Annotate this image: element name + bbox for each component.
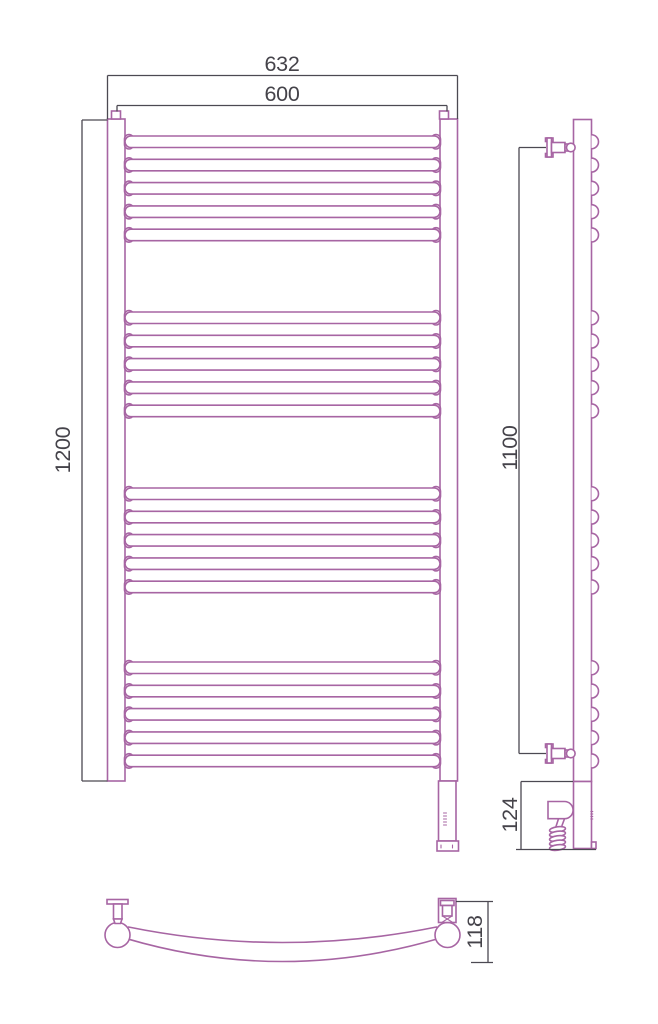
front-right-post: [440, 119, 458, 781]
front-rung: [125, 535, 440, 547]
side-post: [574, 120, 592, 782]
front-rung: [125, 335, 440, 347]
cable-neck: [556, 819, 565, 827]
bottom-right-collector: [435, 923, 460, 948]
bracket-ball: [567, 143, 576, 152]
side-rung-ends: [592, 135, 599, 768]
dim-overall-height: 1200: [51, 120, 108, 781]
bracket-arm: [552, 749, 566, 759]
front-rung: [125, 488, 440, 500]
front-rungs: [125, 135, 441, 769]
side-rung-bump: [592, 158, 599, 172]
dim-overall-height-label: 1200: [51, 426, 75, 473]
front-rung: [125, 312, 440, 324]
side-rung-bump: [592, 357, 599, 371]
side-wall-brackets: [546, 138, 576, 763]
side-rung-bump: [592, 707, 599, 721]
front-rung: [125, 206, 440, 218]
drawing-sheet: 632 600 1200 1100 124 118: [0, 0, 658, 1024]
bracket-arm: [552, 143, 566, 153]
front-rung: [125, 558, 440, 570]
side-rung-bump: [592, 510, 599, 524]
bottom-right-bracket: [439, 899, 457, 923]
front-rung: [125, 685, 440, 697]
front-rung: [125, 662, 440, 674]
front-left-top-stub: [112, 111, 121, 119]
side-rung-bump: [592, 334, 599, 348]
front-rung: [125, 755, 440, 767]
side-rung-bump: [592, 487, 599, 501]
front-rung: [125, 709, 440, 721]
front-rung: [125, 229, 440, 241]
front-left-post: [108, 119, 126, 781]
curved-rung-bottom-edge: [125, 938, 441, 962]
front-rung: [125, 405, 440, 417]
dim-rail-width: 600: [117, 82, 447, 112]
side-bottom-foot: [592, 842, 597, 849]
side-rung-bump: [592, 533, 599, 547]
front-rung: [125, 382, 440, 394]
bottom-left-bracket: [107, 900, 128, 924]
front-rung: [125, 359, 440, 371]
bracket-ball: [567, 749, 576, 758]
bottom-view: [105, 899, 460, 962]
front-rung: [125, 511, 440, 523]
side-rung-bump: [592, 135, 599, 149]
side-rung-bump: [592, 684, 599, 698]
side-heater-section: [574, 782, 592, 849]
dim-depth: 118: [456, 902, 493, 963]
front-rung: [125, 159, 440, 171]
front-rung: [125, 581, 440, 593]
side-rung-bump: [592, 661, 599, 675]
side-rung-bump: [592, 754, 599, 768]
bottom-left-collector: [105, 923, 130, 948]
side-rung-bump: [592, 381, 599, 395]
heater-head: [548, 802, 573, 819]
side-rung-bump: [592, 205, 599, 219]
front-heater-housing: [437, 781, 459, 851]
front-rung: [125, 732, 440, 744]
side-rung-bump: [592, 557, 599, 571]
dim-mounting-height-label: 1100: [498, 425, 522, 470]
front-rung: [125, 183, 440, 195]
front-view: [108, 111, 459, 851]
technical-drawing: 632 600 1200 1100 124 118: [0, 0, 658, 1024]
dim-lower-section-label: 124: [498, 797, 522, 832]
dim-depth-label: 118: [463, 915, 487, 949]
front-right-top-stub: [440, 111, 449, 119]
dim-overall-width-label: 632: [265, 52, 300, 76]
front-rung: [125, 136, 440, 148]
dim-rail-width-label: 600: [265, 82, 300, 106]
cable-coil: [549, 826, 566, 852]
dim-mounting-height: 1100: [498, 148, 546, 754]
side-rung-bump: [592, 311, 599, 325]
side-rung-bump: [592, 580, 599, 594]
side-view: [546, 120, 599, 852]
side-rung-bump: [592, 181, 599, 195]
side-rung-bump: [592, 731, 599, 745]
side-rung-bump: [592, 228, 599, 242]
side-rung-bump: [592, 404, 599, 418]
curved-rung-top-edge: [129, 927, 437, 943]
